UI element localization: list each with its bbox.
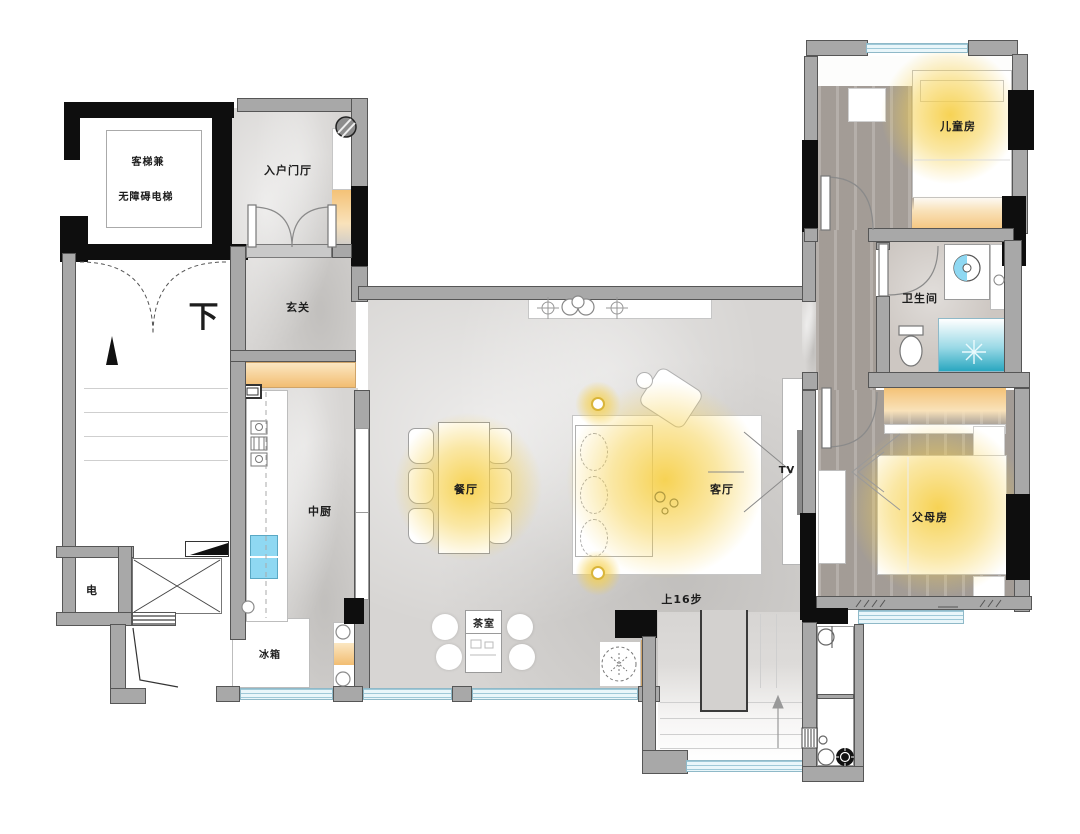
flower-icon <box>562 296 594 315</box>
parents-door <box>822 388 877 448</box>
stove-icon <box>251 421 267 466</box>
basin-icon <box>994 275 1004 285</box>
tea-set-icon <box>470 640 496 655</box>
room-label-stairs-down: 下 <box>182 292 226 336</box>
bathroom-door <box>879 244 938 296</box>
room-label-fridge: 冰箱 <box>246 646 294 661</box>
room-label-living: 客厅 <box>698 481 746 497</box>
room-label-bathroom: 卫生间 <box>890 290 950 306</box>
room-label-hallway: 玄关 <box>275 299 321 315</box>
plant-icon <box>602 647 636 681</box>
room-label-kids-room: 儿童房 <box>928 118 988 134</box>
room-label-kitchen: 中厨 <box>296 503 344 519</box>
room-label-elevator-2: 无障碍电梯 <box>88 188 204 203</box>
stair-up-arrow <box>773 696 783 748</box>
floor-plan: 客梯兼 无障碍电梯 入户门厅 玄关 下 电 冰箱 中厨 餐厅 客厅 茶室 TV … <box>0 0 1080 834</box>
shower-sparkle-icon <box>962 340 986 364</box>
bottom-left-door <box>133 628 178 687</box>
wardrobe-arrows <box>852 434 900 510</box>
toilet-icon <box>899 326 923 366</box>
hatched-column-icon <box>336 117 356 137</box>
utility-fixtures <box>818 626 834 765</box>
kids-door <box>821 176 873 230</box>
room-label-dining: 餐厅 <box>442 481 490 497</box>
foyer-double-door <box>248 205 336 247</box>
wedge-triangle <box>190 543 228 555</box>
folding-door-x <box>134 560 220 612</box>
room-label-electrical: 电 <box>78 582 106 598</box>
room-label-elevator-1: 客梯兼 <box>96 153 200 168</box>
room-label-tea-room: 茶室 <box>466 615 502 630</box>
room-label-tv: TV <box>772 465 802 476</box>
room-label-entry-foyer: 入户门厅 <box>248 162 328 178</box>
room-label-parents-room: 父母房 <box>900 509 960 525</box>
gas-stove-icon <box>836 748 854 766</box>
detail-overlay <box>0 0 1080 834</box>
washing-machine-icon <box>954 255 980 281</box>
electric-panel-inner <box>247 388 258 395</box>
wall-hatch-marks <box>856 600 1001 607</box>
vent-grille-icon <box>802 728 817 748</box>
appliance-circles <box>242 601 350 686</box>
room-label-stairs-up: 上16步 <box>652 591 712 607</box>
stair-down-arrow <box>106 336 118 365</box>
decor-dots <box>655 492 678 514</box>
